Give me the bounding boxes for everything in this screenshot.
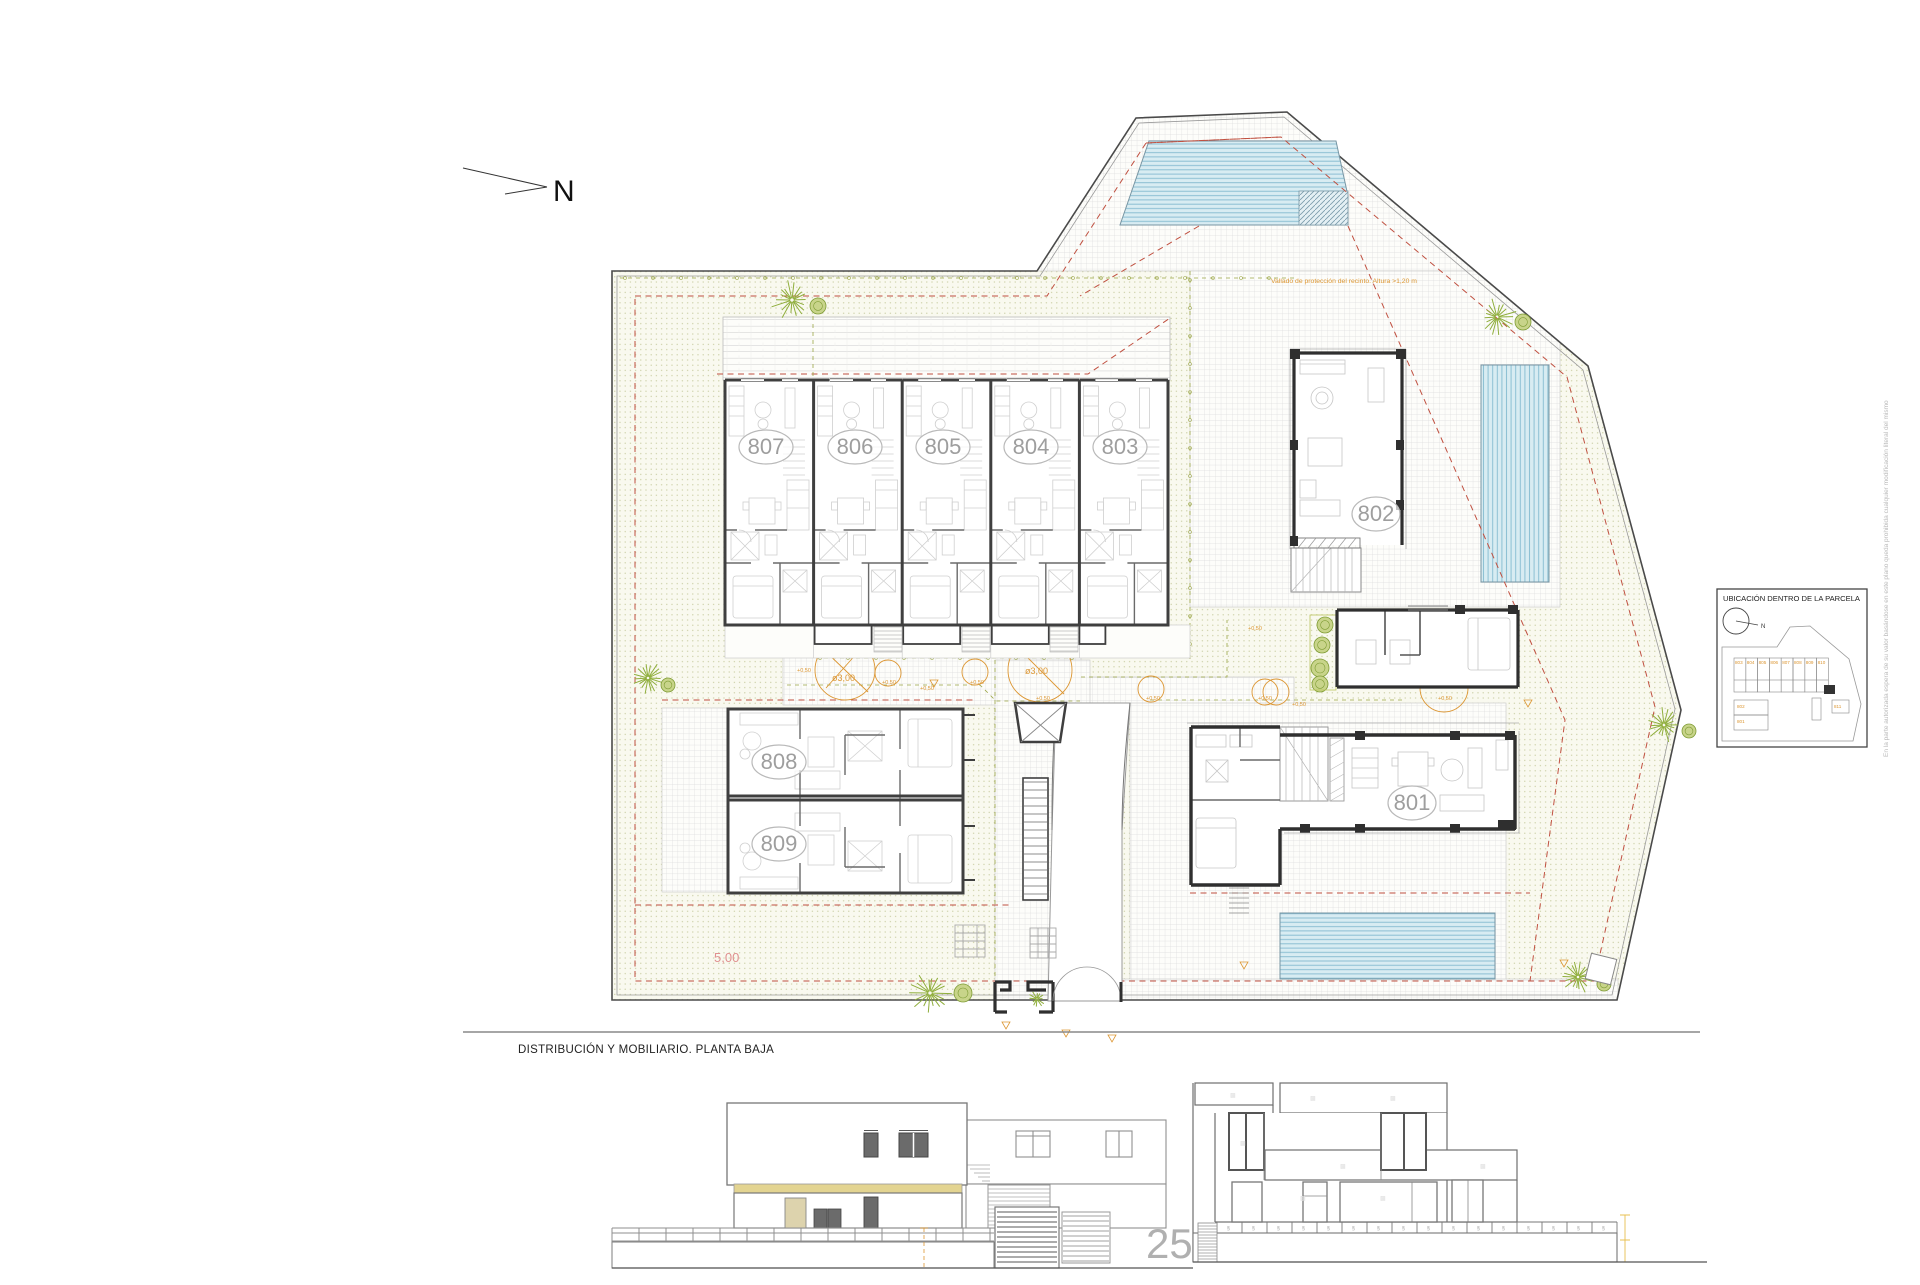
svg-text:▩: ▩ bbox=[1380, 1196, 1386, 1202]
svg-text:+0,50: +0,50 bbox=[1248, 626, 1262, 632]
svg-text:§: § bbox=[1352, 1226, 1355, 1232]
svg-text:En la parte autorizada espera: En la parte autorizada espera de su valo… bbox=[1883, 400, 1890, 757]
svg-text:▩: ▩ bbox=[1310, 1096, 1316, 1102]
svg-text:805: 805 bbox=[925, 434, 962, 459]
svg-text:+0,50: +0,50 bbox=[1036, 696, 1050, 702]
svg-text:§: § bbox=[1277, 1226, 1280, 1232]
svg-text:801: 801 bbox=[1394, 790, 1431, 815]
svg-text:25: 25 bbox=[1146, 1220, 1193, 1267]
svg-text:804: 804 bbox=[1747, 660, 1755, 665]
svg-text:803: 803 bbox=[1735, 660, 1743, 665]
svg-text:810: 810 bbox=[1818, 660, 1826, 665]
svg-text:§: § bbox=[1252, 1226, 1255, 1232]
svg-text:809: 809 bbox=[761, 831, 798, 856]
svg-text:+0,50: +0,50 bbox=[1292, 702, 1306, 708]
svg-text:§: § bbox=[1377, 1226, 1380, 1232]
svg-text:806: 806 bbox=[837, 434, 874, 459]
svg-text:§: § bbox=[1402, 1226, 1405, 1232]
svg-text:808: 808 bbox=[1794, 660, 1802, 665]
svg-text:+0,50: +0,50 bbox=[1146, 696, 1160, 702]
svg-text:§: § bbox=[1452, 1226, 1455, 1232]
svg-text:N: N bbox=[553, 175, 575, 208]
svg-text:▩: ▩ bbox=[1390, 1096, 1396, 1102]
svg-text:802: 802 bbox=[1737, 704, 1745, 709]
svg-text:ø3,00: ø3,00 bbox=[832, 673, 855, 683]
svg-text:809: 809 bbox=[1806, 660, 1814, 665]
svg-text:805: 805 bbox=[1759, 660, 1767, 665]
svg-text:5,00: 5,00 bbox=[714, 950, 739, 965]
svg-text:§: § bbox=[1552, 1226, 1555, 1232]
svg-text:Vallado de protección del reci: Vallado de protección del recinto. Altur… bbox=[1271, 278, 1417, 285]
svg-text:+0,50: +0,50 bbox=[1438, 696, 1452, 702]
svg-text:§: § bbox=[1477, 1226, 1480, 1232]
svg-text:§: § bbox=[1327, 1226, 1330, 1232]
svg-text:811: 811 bbox=[1834, 704, 1842, 709]
svg-text:§: § bbox=[1227, 1226, 1230, 1232]
svg-text:▩: ▩ bbox=[1340, 1164, 1346, 1170]
svg-text:▩: ▩ bbox=[1300, 1196, 1306, 1202]
svg-text:+0,50: +0,50 bbox=[970, 680, 984, 686]
svg-text:802: 802 bbox=[1358, 501, 1395, 526]
svg-text:806: 806 bbox=[1770, 660, 1778, 665]
svg-text:804: 804 bbox=[1013, 434, 1050, 459]
svg-text:ø3,00: ø3,00 bbox=[1025, 666, 1048, 676]
svg-text:▩: ▩ bbox=[1230, 1093, 1236, 1099]
svg-text:807: 807 bbox=[1782, 660, 1790, 665]
svg-text:§: § bbox=[1302, 1226, 1305, 1232]
svg-text:§: § bbox=[1527, 1226, 1530, 1232]
svg-text:803: 803 bbox=[1102, 434, 1139, 459]
svg-text:▩: ▩ bbox=[1240, 1141, 1246, 1147]
svg-text:+0,50: +0,50 bbox=[882, 680, 896, 686]
svg-text:§: § bbox=[1602, 1226, 1605, 1232]
svg-text:DISTRIBUCIÓN Y MOBILIARIO. PLA: DISTRIBUCIÓN Y MOBILIARIO. PLANTA BAJA bbox=[518, 1043, 774, 1056]
svg-text:§: § bbox=[1577, 1226, 1580, 1232]
svg-text:801: 801 bbox=[1737, 719, 1745, 724]
svg-text:§: § bbox=[1502, 1226, 1505, 1232]
svg-text:N: N bbox=[1761, 624, 1765, 630]
svg-text:+0,50: +0,50 bbox=[1258, 696, 1272, 702]
svg-text:UBICACIÓN DENTRO DE LA PARCELA: UBICACIÓN DENTRO DE LA PARCELA bbox=[1723, 594, 1861, 603]
svg-text:808: 808 bbox=[761, 749, 798, 774]
svg-text:+0,50: +0,50 bbox=[920, 686, 934, 692]
svg-text:▩: ▩ bbox=[1480, 1164, 1486, 1170]
svg-text:§: § bbox=[1427, 1226, 1430, 1232]
svg-text:+0,50: +0,50 bbox=[797, 668, 811, 674]
svg-text:807: 807 bbox=[748, 434, 785, 459]
